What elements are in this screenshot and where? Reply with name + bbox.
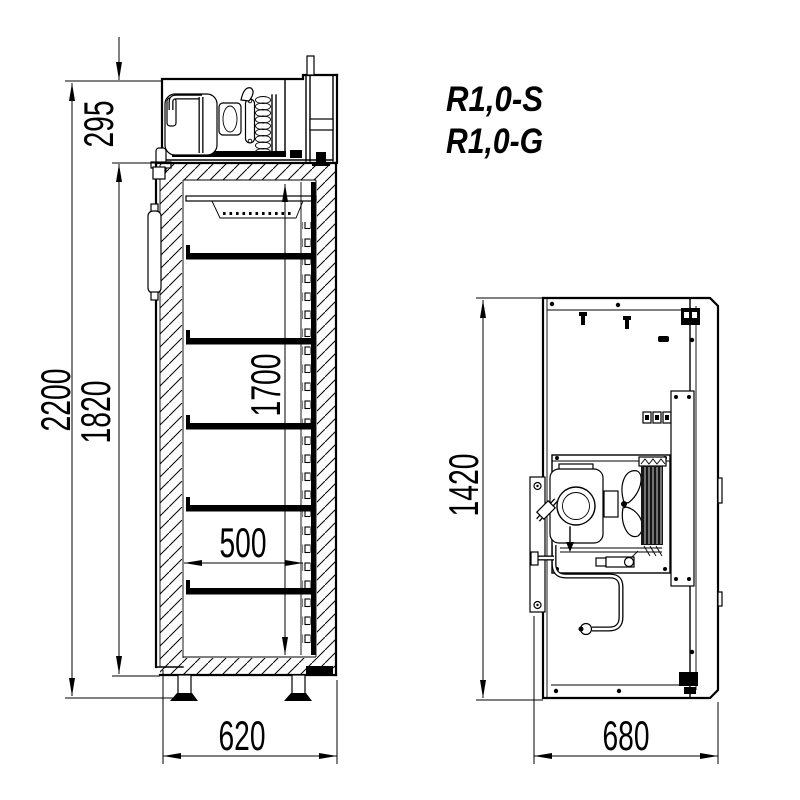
machine-compartment xyxy=(151,56,337,174)
shelf xyxy=(186,245,311,260)
rear-view: 1420 680 xyxy=(440,298,722,764)
evaporator-tray xyxy=(186,196,316,218)
hinge-bracket xyxy=(153,167,165,179)
unit-fan xyxy=(604,471,642,537)
shelf-rack-strip xyxy=(301,182,316,655)
bottom-corner-bracket xyxy=(679,672,698,694)
unit-drier-valve xyxy=(596,551,638,567)
front-foot xyxy=(170,675,198,701)
unit-compressor xyxy=(550,464,603,543)
side-cover-strip xyxy=(671,391,694,586)
model-name-2: R1,0-G xyxy=(446,122,543,161)
ceiling-insulation xyxy=(160,164,336,180)
cabinet-body xyxy=(148,163,336,701)
door-handle xyxy=(148,204,161,300)
dim-interior-height: 1700 xyxy=(242,354,289,417)
shelf xyxy=(186,330,311,345)
shelf xyxy=(186,580,311,595)
model-name-1: R1,0-S xyxy=(446,80,543,119)
cabinet-dimension-drawing: 2200 295 1820 1700 500 620 xyxy=(0,0,800,800)
condenser-coil xyxy=(256,79,286,156)
dim-body-height: 1820 xyxy=(72,381,119,444)
filter-drier xyxy=(246,99,255,143)
panel-bolt xyxy=(579,312,587,325)
flow-arrow xyxy=(566,542,574,552)
technical-drawing-page: 2200 295 1820 1700 500 620 xyxy=(0,0,800,800)
mounting-plate xyxy=(530,477,545,612)
panel-bolt xyxy=(623,316,631,329)
dim-shelf-depth: 500 xyxy=(220,519,267,566)
dim-overall-width: 680 xyxy=(603,712,650,759)
shelf xyxy=(186,497,311,512)
vent-slot xyxy=(658,336,669,342)
back-wall-insulation xyxy=(317,180,335,658)
unit-condenser xyxy=(639,457,666,545)
top-corner-bracket xyxy=(681,308,700,325)
dim-machine-compartment-height: 295 xyxy=(75,101,122,148)
side-view: 2200 295 1820 1700 500 620 xyxy=(32,37,337,764)
rear-base-bracket xyxy=(306,666,333,676)
rear-foot xyxy=(284,675,312,701)
dim-overall-depth: 620 xyxy=(219,712,266,759)
terminal-block xyxy=(643,412,671,423)
compressor xyxy=(165,94,217,155)
rear-bracket xyxy=(310,119,333,130)
door-insulation xyxy=(160,180,182,658)
rear-flange xyxy=(307,56,314,75)
model-labels: R1,0-S R1,0-G xyxy=(446,80,543,161)
condensing-unit xyxy=(530,455,670,635)
dim-unit-height: 1420 xyxy=(440,454,487,517)
machine-fan xyxy=(219,103,241,135)
